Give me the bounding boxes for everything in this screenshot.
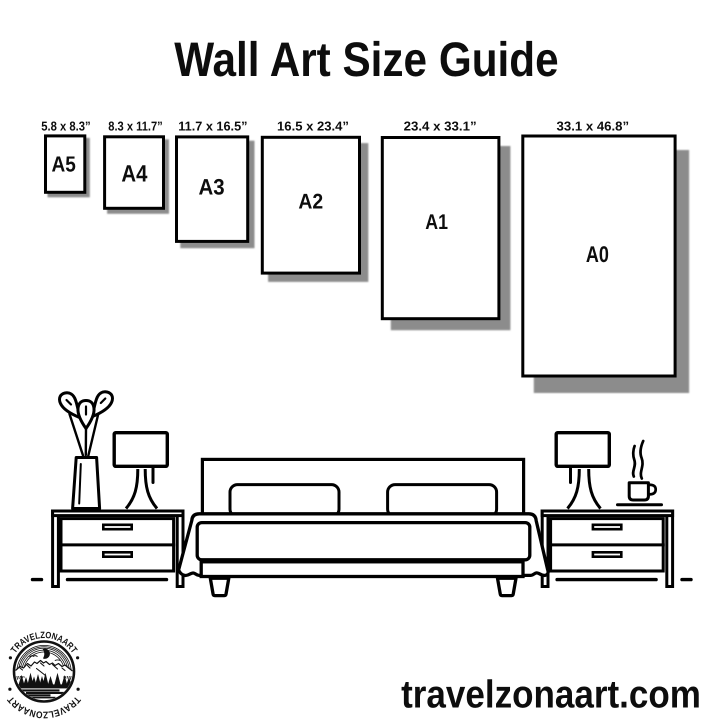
svg-text:A0: A0: [586, 241, 609, 267]
svg-text:A2: A2: [298, 190, 323, 214]
svg-text:8.3 x 11.7”: 8.3 x 11.7”: [108, 118, 163, 133]
svg-text:16.5 x 23.4”: 16.5 x 23.4”: [277, 118, 349, 133]
svg-text:A1: A1: [425, 210, 448, 234]
svg-text:A5: A5: [52, 151, 76, 176]
svg-text:travelzonaart.com: travelzonaart.com: [401, 674, 701, 717]
svg-text:23.4 x 33.1”: 23.4 x 33.1”: [404, 118, 477, 133]
svg-text:A3: A3: [199, 174, 225, 199]
svg-text:33.1 x 46.8”: 33.1 x 46.8”: [557, 118, 630, 133]
svg-text:Wall Art Size Guide: Wall Art Size Guide: [174, 33, 558, 87]
svg-text:11.7 x 16.5”: 11.7 x 16.5”: [178, 118, 247, 133]
svg-text:A4: A4: [121, 161, 147, 187]
svg-text:5.8 x 8.3”: 5.8 x 8.3”: [41, 118, 90, 133]
